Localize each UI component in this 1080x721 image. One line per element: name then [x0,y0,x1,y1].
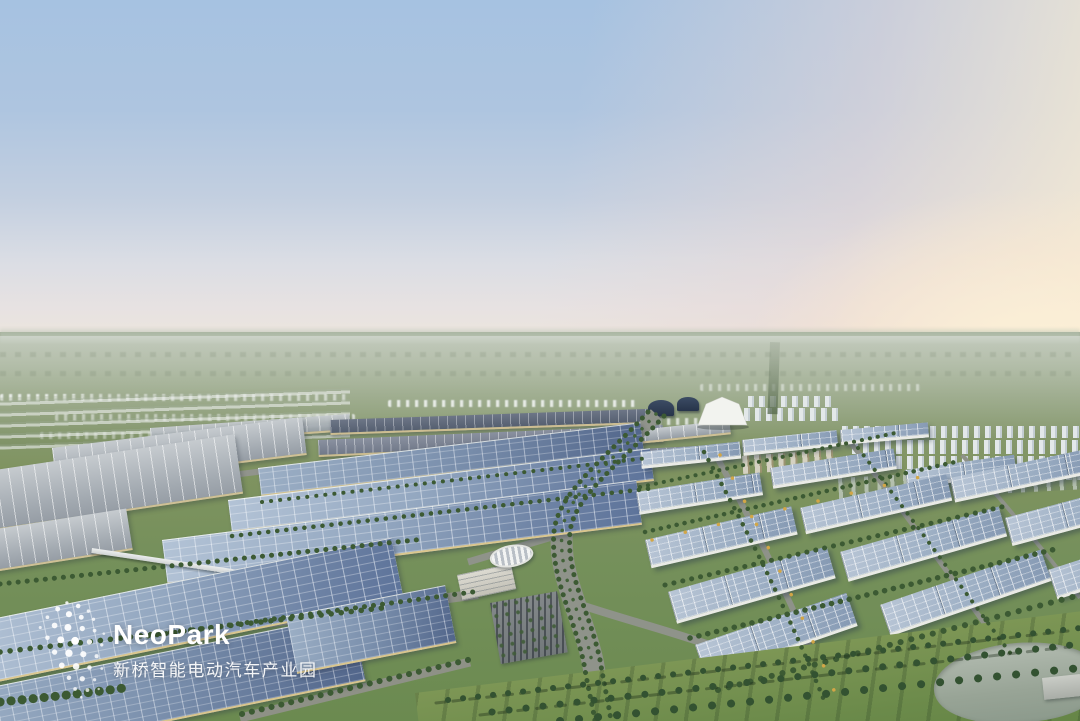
horizon-haze [0,327,1080,343]
exhibition-hall [648,400,674,416]
logo-subtitle: 新桥智能电动汽车产业园 [113,656,318,681]
parking-lot [490,591,568,664]
distant-village-strip [388,400,638,407]
logo-wordmark: NeoPark [113,621,318,649]
far-treeline [0,352,1080,357]
far-treeline [0,371,1080,376]
residential-towers [748,396,836,407]
pond-side-building [1042,674,1080,700]
residential-towers [744,408,840,421]
aerial-rendering-scene: NeoPark 新桥智能电动汽车产业园 [0,0,1080,721]
logo-lockup: NeoPark 新桥智能电动汽车产业园 [113,621,318,681]
dot-cluster-icon [30,596,112,700]
exhibition-hall [677,397,699,411]
distant-village-strip [700,384,920,391]
